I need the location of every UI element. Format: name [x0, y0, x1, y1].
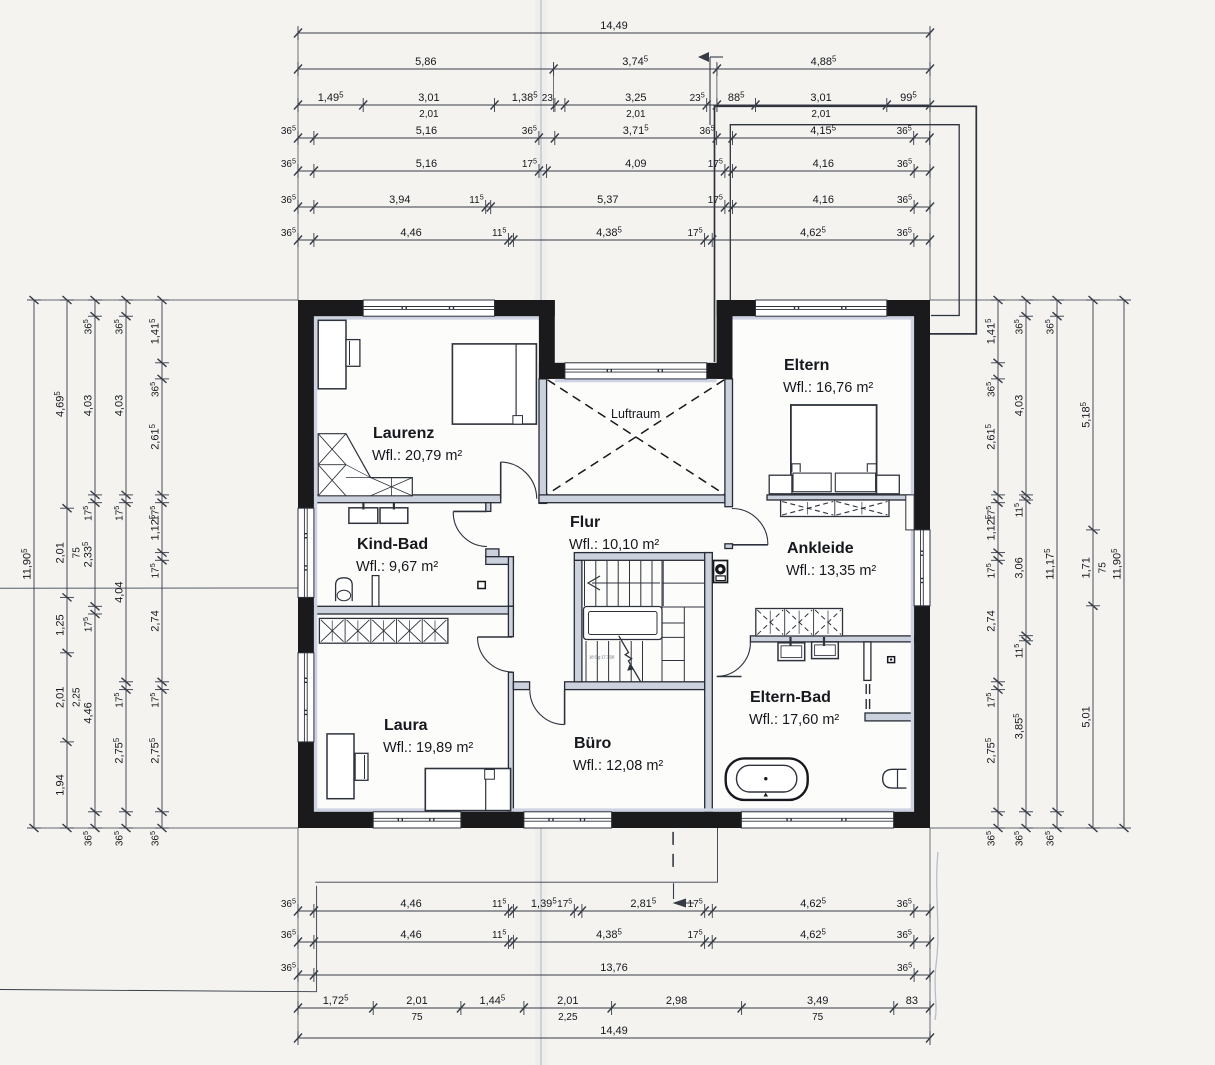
svg-text:4,695: 4,695	[53, 391, 67, 417]
svg-text:18 Stg 17,7/28: 18 Stg 17,7/28	[589, 655, 615, 660]
svg-text:4,625: 4,625	[800, 928, 826, 942]
svg-text:Wfl.: 19,89 m²: Wfl.: 19,89 m²	[383, 740, 473, 756]
svg-text:4,16: 4,16	[813, 158, 834, 170]
svg-text:4,385: 4,385	[596, 226, 622, 240]
svg-text:115: 115	[492, 897, 506, 911]
svg-text:5,37: 5,37	[597, 194, 618, 206]
svg-text:Wfl.: 10,10 m²: Wfl.: 10,10 m²	[569, 537, 659, 553]
svg-text:175: 175	[81, 506, 95, 521]
svg-text:Büro: Büro	[574, 735, 612, 752]
svg-text:175: 175	[522, 157, 537, 171]
svg-text:3,745: 3,745	[622, 55, 648, 69]
svg-text:175: 175	[984, 693, 998, 708]
svg-text:3,715: 3,715	[623, 124, 649, 138]
svg-text:11,905: 11,905	[1110, 548, 1124, 580]
svg-text:175: 175	[984, 563, 998, 578]
svg-text:2,98: 2,98	[666, 995, 687, 1007]
svg-text:Laura: Laura	[384, 717, 428, 734]
svg-text:4,46: 4,46	[400, 227, 421, 239]
svg-text:4,885: 4,885	[811, 55, 837, 69]
svg-text:2,74: 2,74	[150, 610, 162, 631]
svg-text:175: 175	[81, 617, 95, 632]
svg-text:365: 365	[281, 961, 296, 975]
svg-text:365: 365	[281, 193, 296, 207]
svg-text:75: 75	[1098, 562, 1109, 574]
svg-text:365: 365	[897, 226, 912, 240]
svg-text:175: 175	[148, 563, 162, 578]
svg-text:2,74: 2,74	[986, 610, 998, 631]
svg-text:365: 365	[112, 831, 126, 846]
svg-text:1,94: 1,94	[55, 774, 67, 795]
svg-text:235: 235	[690, 91, 705, 105]
svg-text:1,495: 1,495	[318, 91, 344, 105]
svg-text:365: 365	[81, 831, 95, 846]
svg-text:2,01: 2,01	[419, 109, 439, 120]
svg-text:1,415: 1,415	[984, 318, 998, 344]
svg-text:365: 365	[148, 382, 162, 397]
svg-text:2,815: 2,815	[630, 897, 656, 911]
svg-text:175: 175	[112, 506, 126, 521]
svg-text:14,49: 14,49	[600, 20, 628, 32]
svg-text:885: 885	[728, 91, 745, 105]
svg-text:1,445: 1,445	[479, 994, 505, 1008]
svg-text:175: 175	[708, 193, 723, 207]
svg-text:4,625: 4,625	[800, 897, 826, 911]
svg-text:365: 365	[1043, 319, 1057, 334]
svg-text:4,03: 4,03	[114, 395, 126, 416]
svg-text:2,01: 2,01	[811, 109, 831, 120]
svg-text:365: 365	[281, 897, 296, 911]
svg-text:1,71: 1,71	[1081, 557, 1093, 578]
svg-text:365: 365	[897, 897, 912, 911]
svg-text:75: 75	[812, 1012, 824, 1023]
svg-text:2,01: 2,01	[406, 995, 427, 1007]
svg-text:Wfl.: 9,67 m²: Wfl.: 9,67 m²	[356, 559, 438, 575]
svg-text:2,615: 2,615	[148, 423, 162, 449]
svg-text:175: 175	[112, 693, 126, 708]
svg-text:4,46: 4,46	[400, 929, 421, 941]
svg-text:3,49: 3,49	[807, 995, 828, 1007]
svg-text:2,755: 2,755	[148, 737, 162, 763]
svg-text:4,46: 4,46	[83, 702, 95, 723]
svg-text:1,395: 1,395	[531, 897, 557, 911]
svg-text:365: 365	[81, 319, 95, 334]
svg-text:365: 365	[1012, 831, 1026, 846]
svg-text:Wfl.: 12,08 m²: Wfl.: 12,08 m²	[573, 758, 663, 774]
svg-text:365: 365	[984, 831, 998, 846]
svg-text:115: 115	[1012, 644, 1026, 658]
svg-text:83: 83	[906, 995, 918, 1007]
svg-text:365: 365	[112, 319, 126, 334]
svg-text:175: 175	[687, 928, 702, 942]
svg-text:Eltern-Bad: Eltern-Bad	[750, 689, 831, 706]
svg-text:5,01: 5,01	[1081, 706, 1093, 727]
svg-text:4,03: 4,03	[1014, 395, 1026, 416]
svg-text:5,16: 5,16	[416, 158, 437, 170]
svg-text:4,625: 4,625	[800, 226, 826, 240]
svg-text:Ankleide: Ankleide	[787, 540, 854, 557]
svg-text:4,09: 4,09	[625, 158, 646, 170]
svg-text:365: 365	[281, 226, 296, 240]
svg-text:Flur: Flur	[570, 514, 600, 531]
svg-text:365: 365	[897, 193, 912, 207]
svg-text:2,01: 2,01	[626, 109, 646, 120]
svg-text:3,94: 3,94	[389, 194, 410, 206]
svg-text:4,03: 4,03	[83, 395, 95, 416]
svg-text:365: 365	[281, 157, 296, 171]
svg-text:365: 365	[897, 157, 912, 171]
svg-text:1,385: 1,385	[512, 91, 538, 105]
svg-text:2,755: 2,755	[984, 737, 998, 763]
svg-text:2,615: 2,615	[984, 423, 998, 449]
svg-text:Wfl.: 17,60 m²: Wfl.: 17,60 m²	[749, 712, 839, 728]
svg-text:175: 175	[688, 897, 703, 911]
svg-text:365: 365	[897, 928, 912, 942]
svg-text:11,175: 11,175	[1043, 548, 1057, 580]
svg-text:4,46: 4,46	[400, 898, 421, 910]
svg-text:Wfl.: 20,79 m²: Wfl.: 20,79 m²	[372, 448, 462, 464]
svg-text:2,755: 2,755	[112, 737, 126, 763]
svg-text:13,76: 13,76	[600, 962, 628, 974]
svg-text:175: 175	[557, 897, 572, 911]
svg-text:175: 175	[148, 693, 162, 708]
svg-text:115: 115	[492, 226, 506, 240]
svg-text:365: 365	[897, 124, 912, 138]
svg-text:365: 365	[522, 124, 537, 138]
svg-text:23: 23	[542, 93, 554, 104]
svg-text:Wfl.: 13,35 m²: Wfl.: 13,35 m²	[786, 563, 876, 579]
svg-text:5,185: 5,185	[1079, 401, 1093, 427]
svg-text:2,25: 2,25	[558, 1012, 578, 1023]
svg-text:2,25: 2,25	[72, 687, 83, 707]
svg-text:1,415: 1,415	[148, 318, 162, 344]
svg-text:175: 175	[708, 157, 723, 171]
svg-text:1,725: 1,725	[323, 994, 349, 1008]
svg-text:14,49: 14,49	[600, 1025, 628, 1037]
svg-text:4,04: 4,04	[114, 581, 126, 602]
svg-text:Wfl.: 16,76 m²: Wfl.: 16,76 m²	[783, 380, 873, 396]
svg-text:Luftraum: Luftraum	[611, 407, 660, 421]
svg-text:75: 75	[411, 1012, 423, 1023]
svg-text:5,86: 5,86	[415, 56, 436, 68]
svg-text:4,155: 4,155	[810, 124, 836, 138]
svg-text:365: 365	[1012, 319, 1026, 334]
svg-text:2,01: 2,01	[55, 542, 67, 563]
svg-text:2,01: 2,01	[55, 687, 67, 708]
svg-text:995: 995	[900, 91, 917, 105]
svg-text:3,01: 3,01	[418, 92, 439, 104]
svg-text:11,905: 11,905	[20, 548, 34, 580]
svg-text:2,335: 2,335	[81, 541, 95, 567]
svg-text:Laurenz: Laurenz	[373, 425, 434, 442]
svg-text:1,25: 1,25	[55, 614, 67, 635]
svg-text:365: 365	[148, 831, 162, 846]
svg-text:365: 365	[281, 124, 296, 138]
svg-text:4,16: 4,16	[813, 194, 834, 206]
svg-text:115: 115	[1012, 503, 1026, 517]
svg-text:Eltern: Eltern	[784, 357, 829, 374]
svg-text:5,16: 5,16	[416, 125, 437, 137]
svg-text:2,01: 2,01	[557, 995, 578, 1007]
svg-text:115: 115	[469, 193, 483, 207]
svg-text:365: 365	[984, 382, 998, 397]
svg-text:175: 175	[687, 226, 702, 240]
svg-text:4,385: 4,385	[596, 928, 622, 942]
svg-text:365: 365	[897, 961, 912, 975]
svg-text:3,06: 3,06	[1014, 557, 1026, 578]
svg-text:3,01: 3,01	[810, 92, 831, 104]
svg-text:3,25: 3,25	[625, 92, 646, 104]
svg-text:365: 365	[281, 928, 296, 942]
svg-text:3,855: 3,855	[1012, 713, 1026, 739]
svg-text:365: 365	[699, 124, 714, 138]
svg-text:Kind-Bad: Kind-Bad	[357, 536, 428, 553]
svg-text:75: 75	[72, 547, 83, 559]
svg-text:115: 115	[492, 928, 506, 942]
svg-text:365: 365	[1043, 831, 1057, 846]
